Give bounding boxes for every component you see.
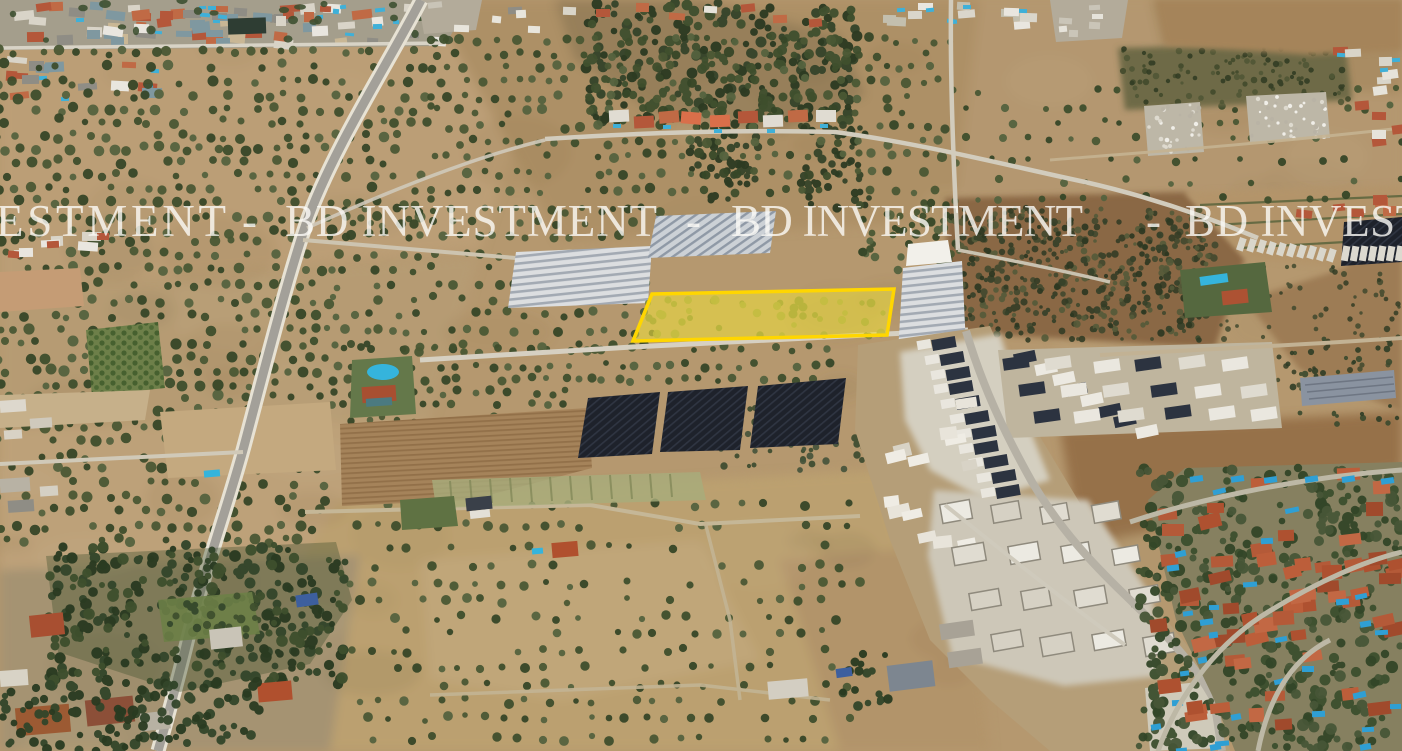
svg-text:-: -	[686, 196, 701, 246]
svg-text:BD INVESTMENT: BD INVESTMENT	[1185, 196, 1402, 246]
svg-text:-: -	[242, 196, 257, 246]
svg-text:BD INVESTMENT: BD INVESTMENT	[731, 196, 1083, 246]
svg-text:ESTMENT: ESTMENT	[0, 196, 226, 246]
svg-text:-: -	[1146, 196, 1161, 246]
svg-text:BD INVESTMENT: BD INVESTMENT	[285, 196, 657, 246]
